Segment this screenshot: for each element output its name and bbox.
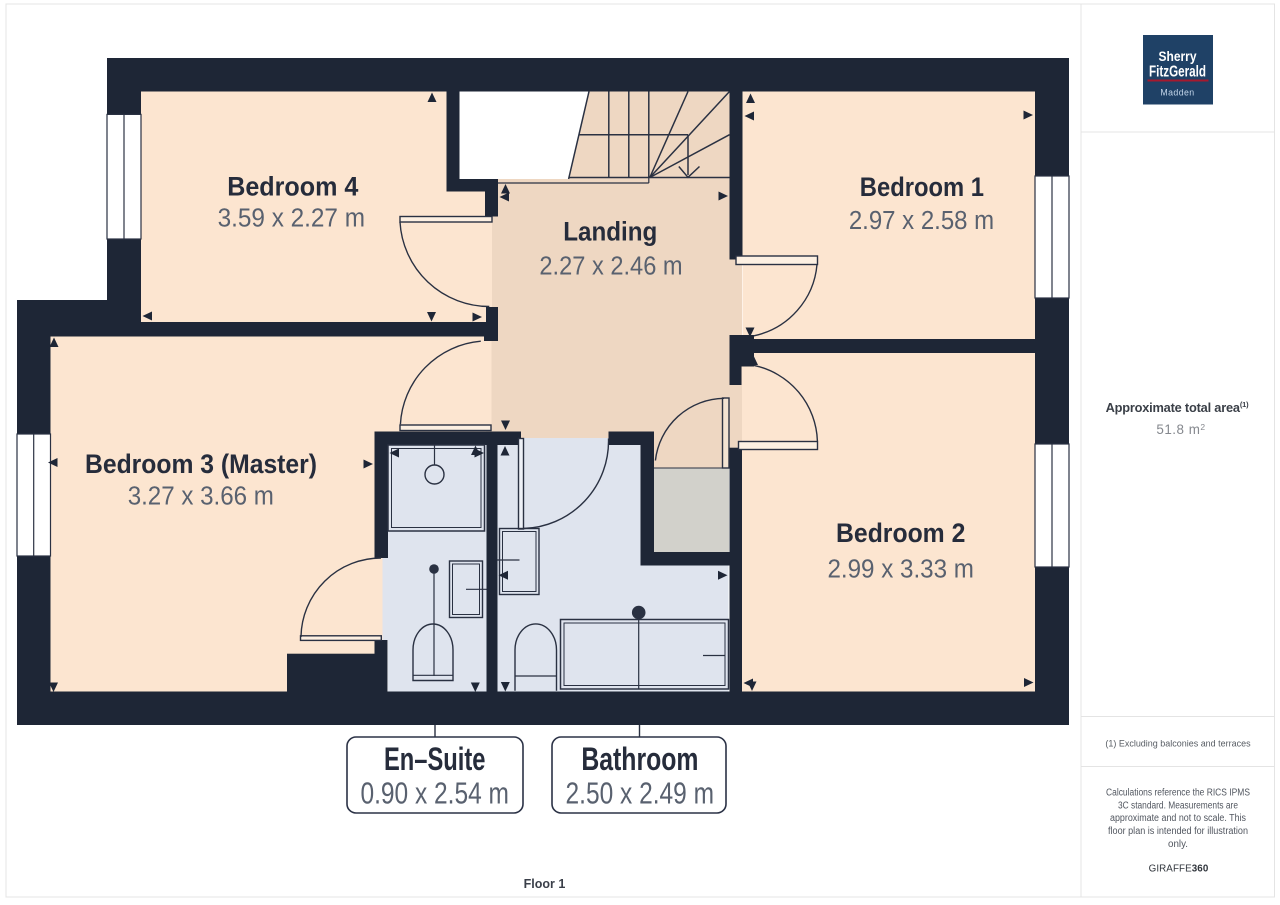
- svg-text:51.8 m2: 51.8 m2: [1156, 422, 1205, 437]
- svg-text:floor plan is intended for ill: floor plan is intended for illustration: [1108, 826, 1248, 837]
- svg-text:2.27 x 2.46 m: 2.27 x 2.46 m: [539, 253, 682, 281]
- svg-text:Bedroom 1: Bedroom 1: [860, 172, 984, 202]
- svg-text:En–Suite: En–Suite: [384, 741, 486, 777]
- svg-text:FitzGerald: FitzGerald: [1149, 64, 1206, 81]
- svg-text:Calculations reference the RIC: Calculations reference the RICS IPMS: [1106, 788, 1250, 799]
- svg-text:3C standard. Measurements are: 3C standard. Measurements are: [1118, 800, 1238, 811]
- svg-text:2.99 x 3.33 m: 2.99 x 3.33 m: [827, 555, 974, 583]
- svg-text:Landing: Landing: [563, 216, 657, 246]
- svg-text:approximate and not to scale.: approximate and not to scale. This: [1110, 813, 1246, 824]
- svg-text:2.97 x 2.58 m: 2.97 x 2.58 m: [849, 207, 994, 235]
- svg-text:(1) Excluding balconies and te: (1) Excluding balconies and terraces: [1105, 739, 1250, 750]
- svg-text:Floor 1: Floor 1: [524, 877, 566, 891]
- svg-text:only.: only.: [1168, 839, 1188, 850]
- svg-text:2.50 x 2.49 m: 2.50 x 2.49 m: [566, 775, 715, 810]
- svg-text:3.27 x 3.66 m: 3.27 x 3.66 m: [128, 482, 274, 510]
- svg-text:Madden: Madden: [1160, 88, 1194, 98]
- svg-text:GIRAFFE360: GIRAFFE360: [1149, 864, 1209, 875]
- svg-text:Bathroom: Bathroom: [581, 741, 698, 777]
- svg-text:3.59 x 2.27 m: 3.59 x 2.27 m: [218, 204, 365, 232]
- svg-text:Bedroom 2: Bedroom 2: [836, 518, 965, 548]
- svg-text:Bedroom 3 (Master): Bedroom 3 (Master): [85, 449, 317, 479]
- svg-text:Bedroom 4: Bedroom 4: [227, 172, 358, 202]
- svg-text:Approximate total area(1): Approximate total area(1): [1106, 400, 1250, 415]
- svg-text:0.90 x 2.54 m: 0.90 x 2.54 m: [360, 775, 509, 810]
- svg-text:Sherry: Sherry: [1159, 48, 1197, 64]
